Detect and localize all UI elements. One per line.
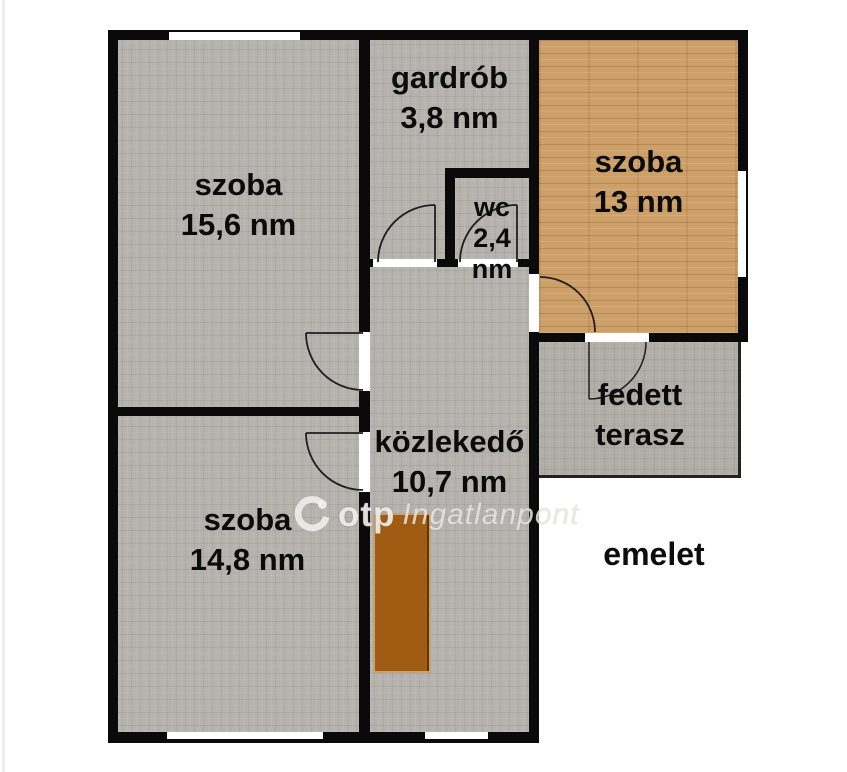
label-szoba-13-name: szoba (539, 142, 738, 182)
label-szoba-14-area: 14,8 nm (127, 540, 368, 580)
otp-logo-icon (293, 496, 331, 534)
floor-level-label: emelet (554, 536, 754, 573)
door-gardrob (378, 205, 435, 262)
label-terasz: fedett terasz (539, 375, 741, 455)
label-szoba-13: szoba 13 nm (539, 142, 738, 222)
label-szoba-15: szoba 15,6 nm (118, 165, 359, 245)
label-terasz-line1: fedett (539, 375, 741, 415)
door-szoba13 (540, 277, 595, 332)
floor-plan-canvas: szoba 15,6 nm szoba 14,8 nm gardrób 3,8 … (0, 0, 847, 772)
label-gardrob: gardrób 3,8 nm (370, 58, 529, 138)
door-szoba14 (306, 433, 363, 490)
label-szoba-15-name: szoba (118, 165, 359, 205)
watermark-name: Ingatlanpont (402, 498, 579, 532)
watermark: otp Ingatlanpont (293, 493, 580, 537)
label-wc-area: 2,4 nm (452, 223, 532, 285)
label-szoba-15-area: 15,6 nm (118, 205, 359, 245)
label-szoba-13-area: 13 nm (539, 182, 738, 222)
label-gardrob-area: 3,8 nm (370, 98, 529, 138)
door-szoba15 (306, 333, 363, 390)
label-gardrob-name: gardrób (370, 58, 529, 98)
label-wc: wc 2,4 nm (452, 192, 532, 285)
watermark-brand: otp (338, 495, 395, 535)
label-wc-name: wc (452, 192, 532, 223)
label-kozlekedo: közlekedő 10,7 nm (370, 422, 529, 502)
label-terasz-line2: terasz (539, 415, 741, 455)
label-kozlekedo-name: közlekedő (370, 422, 529, 462)
